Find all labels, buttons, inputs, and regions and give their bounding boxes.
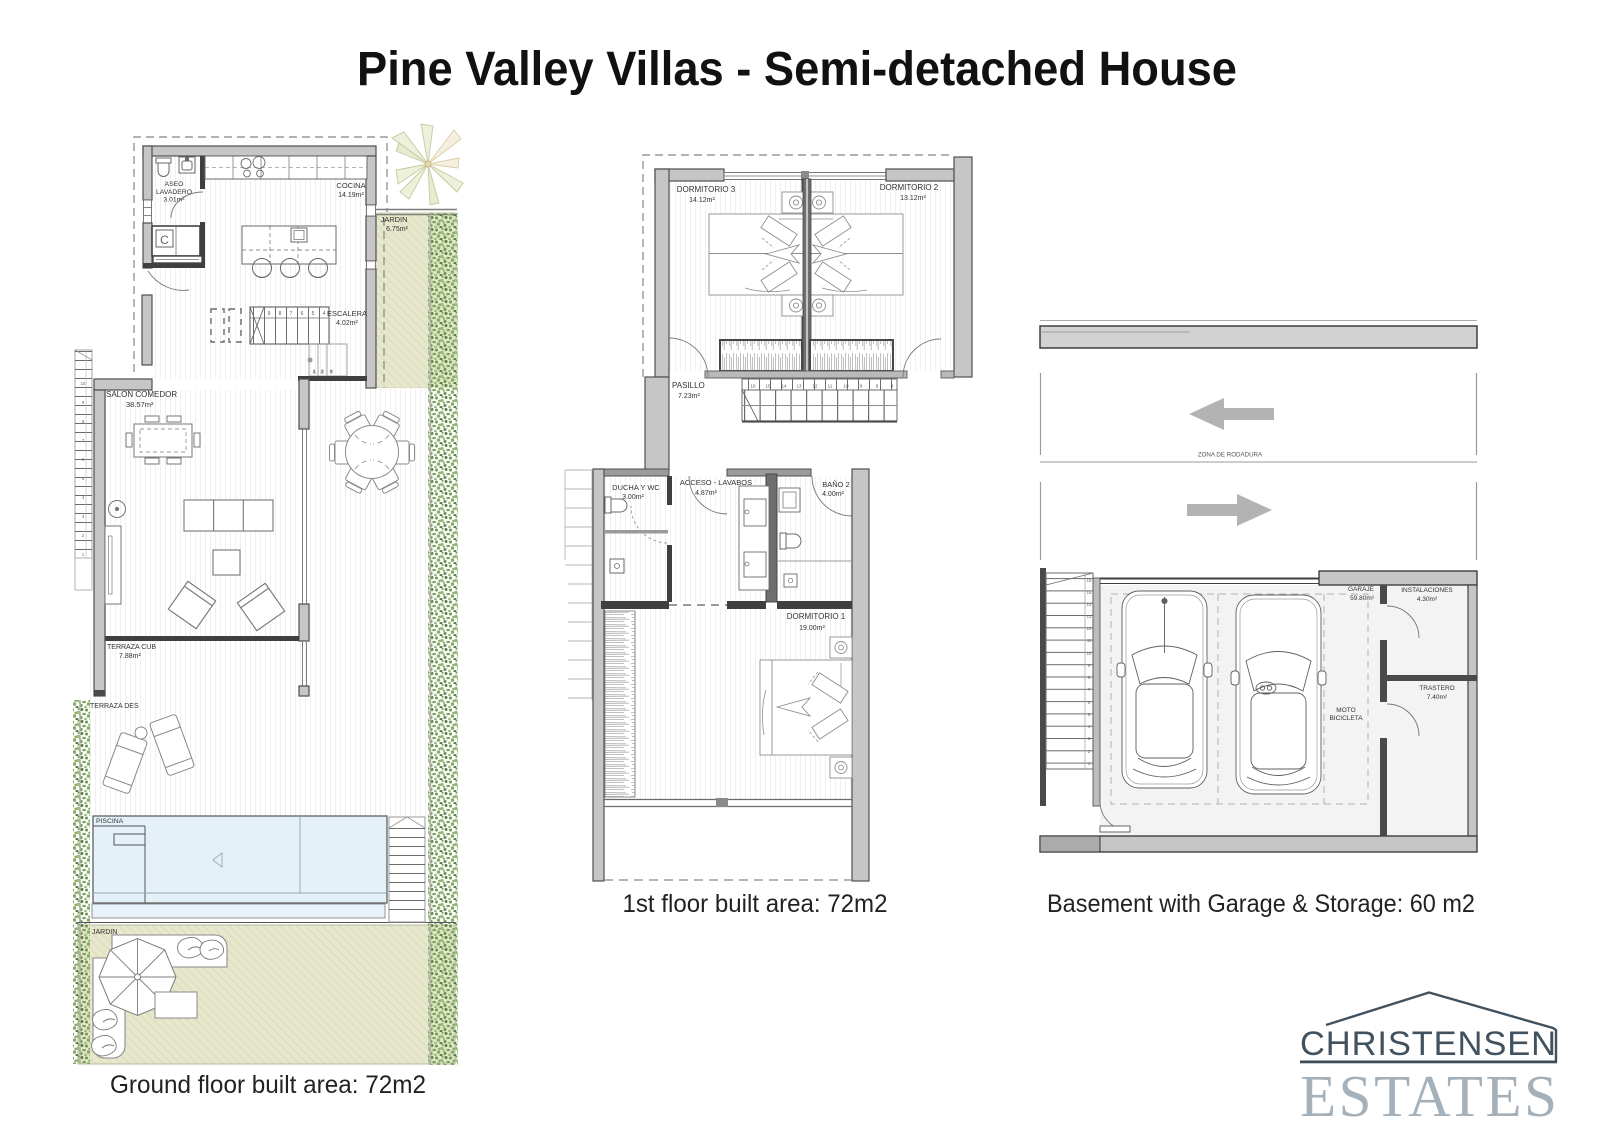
svg-text:7.88m²: 7.88m² [119,653,141,660]
svg-text:BAÑO 2: BAÑO 2 [822,480,850,489]
svg-text:10: 10 [81,381,86,386]
svg-text:Pine Valley Villas - Semi-deta: Pine Valley Villas - Semi-detached House [357,43,1237,96]
svg-text:COCINA: COCINA [336,181,365,190]
svg-text:12: 12 [1087,626,1092,631]
svg-text:11: 11 [828,384,833,389]
svg-text:PISCINA: PISCINA [96,818,124,825]
svg-text:7.40m²: 7.40m² [1427,694,1448,701]
svg-text:3.01m²: 3.01m² [163,197,185,204]
svg-text:DORMITORIO 1: DORMITORIO 1 [787,612,846,621]
svg-text:6: 6 [301,311,304,317]
svg-text:19.00m²: 19.00m² [799,625,825,632]
svg-text:8: 8 [279,311,282,317]
svg-text:6.75m²: 6.75m² [386,226,408,233]
svg-text:1st floor built area: 72m2: 1st floor built area: 72m2 [623,890,888,918]
svg-text:INSTALACIONES: INSTALACIONES [1401,587,1453,594]
svg-text:ESCALERA: ESCALERA [327,309,367,318]
svg-text:15: 15 [1087,590,1092,595]
svg-text:14.19m²: 14.19m² [338,192,364,199]
svg-text:TERRAZA DES: TERRAZA DES [90,703,139,710]
svg-text:7: 7 [290,311,293,317]
svg-text:13: 13 [796,384,802,389]
svg-text:59.80m²: 59.80m² [1350,595,1375,602]
svg-text:C: C [160,233,169,247]
svg-text:JARDIN: JARDIN [380,215,407,224]
svg-text:13: 13 [1087,614,1092,619]
svg-text:4.87m²: 4.87m² [695,490,717,497]
svg-text:GARAJE: GARAJE [1348,586,1375,593]
svg-text:10: 10 [843,384,849,389]
svg-text:Basement with Garage & Storage: Basement with Garage & Storage: 60 m2 [1047,890,1475,918]
svg-text:4: 4 [323,311,326,317]
svg-text:15: 15 [765,384,771,389]
svg-text:14.12m²: 14.12m² [689,197,715,204]
svg-text:LAVADERO: LAVADERO [156,189,192,196]
svg-text:DORMITORIO 2: DORMITORIO 2 [880,183,939,192]
svg-text:TERRAZA CUB: TERRAZA CUB [107,644,156,651]
svg-text:ZONA DE RODADURA: ZONA DE RODADURA [1198,452,1263,459]
svg-text:16: 16 [750,384,756,389]
svg-text:4.30m²: 4.30m² [1417,596,1438,603]
svg-text:ASEO: ASEO [165,181,184,188]
svg-text:SALON COMEDOR: SALON COMEDOR [106,390,177,399]
svg-text:13.12m²: 13.12m² [900,195,926,202]
svg-text:7.23m²: 7.23m² [678,393,700,400]
svg-text:TRASTERO: TRASTERO [1419,685,1454,692]
svg-text:DUCHA Y WC: DUCHA Y WC [612,483,660,492]
svg-text:CHRISTENSEN: CHRISTENSEN [1300,1025,1556,1063]
svg-text:38.57m²: 38.57m² [126,400,154,409]
svg-text:BICICLETA: BICICLETA [1329,715,1363,722]
svg-text:MOTO: MOTO [1336,707,1355,714]
svg-text:16: 16 [1087,578,1092,583]
svg-text:5: 5 [312,311,315,317]
svg-text:10: 10 [1087,651,1092,656]
svg-text:DORMITORIO 3: DORMITORIO 3 [677,185,736,194]
svg-text:4.00m²: 4.00m² [822,491,844,498]
svg-text:9: 9 [268,311,271,317]
svg-text:PASILLO: PASILLO [672,381,705,390]
svg-text:4.02m²: 4.02m² [336,320,358,327]
svg-text:ESTATES: ESTATES [1300,1063,1557,1129]
svg-text:Ground floor built area: 72m2: Ground floor built area: 72m2 [110,1071,426,1099]
svg-text:11: 11 [1087,638,1092,643]
svg-text:3.00m²: 3.00m² [622,494,644,501]
svg-text:14: 14 [781,384,787,389]
svg-text:14: 14 [1087,602,1092,607]
svg-text:12: 12 [812,384,818,389]
